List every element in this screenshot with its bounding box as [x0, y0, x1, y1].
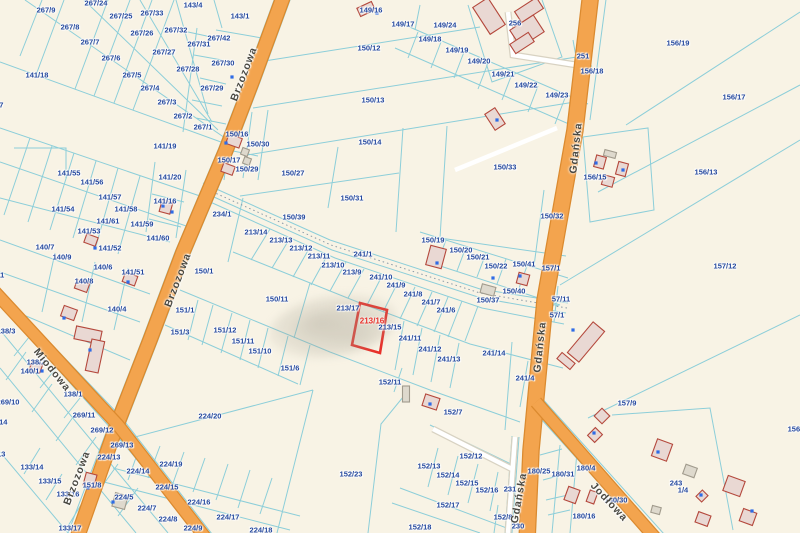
parcel-label: 149/22	[515, 81, 538, 90]
address-point-dot	[592, 431, 595, 434]
building-footprint	[84, 234, 98, 247]
building-footprint	[426, 245, 447, 268]
parcel-label: 156/19	[667, 39, 690, 48]
parcel-label: 57/11	[552, 295, 570, 304]
parcel-label: 213/17	[337, 304, 360, 313]
parcel-label: 141/20	[159, 173, 182, 182]
building-footprint	[651, 439, 672, 461]
parcel-label: 241/11	[399, 334, 422, 343]
parcel-label: 241/6	[437, 306, 456, 315]
parcel-label: 149/19	[446, 46, 469, 55]
parcel-label: 140/8	[75, 277, 94, 286]
parcel-label: 150/32	[541, 212, 564, 221]
parcel-label: 267/4	[141, 84, 160, 93]
parcel-label: 152/13	[418, 462, 441, 471]
address-point-dot	[93, 246, 96, 249]
parcel-label: 234/1	[213, 210, 232, 219]
parcel-label: 150/40	[503, 287, 526, 296]
parcel-label: 150/11	[266, 295, 289, 304]
parcel-label: 269/13	[111, 441, 134, 450]
parcel-label: 141/19	[154, 142, 177, 151]
parcel-label: 57/1	[550, 311, 565, 320]
parcel-label: 150/41	[513, 260, 536, 269]
parcel-label: 241/4	[516, 374, 535, 383]
parcel-label: 156/18	[581, 67, 604, 76]
parcel-label: 267/9	[37, 6, 56, 15]
parcel-label: 141/27	[0, 101, 3, 110]
parcel-label: 241/14	[483, 349, 506, 358]
parcel-label: 267/25	[110, 12, 133, 21]
parcel-label: 156/17	[723, 93, 746, 102]
parcel-label: 267/2	[174, 112, 193, 121]
parcel-label: 156/13	[695, 168, 718, 177]
building-footprint	[594, 408, 610, 424]
parcel-label: 224/17	[217, 513, 240, 522]
parcel-label: 133/15	[39, 477, 62, 486]
address-point-dot	[491, 276, 494, 279]
parcel-label: 141/54	[52, 205, 75, 214]
address-point-dot	[621, 168, 624, 171]
parcel-label: 140/6	[94, 263, 113, 272]
building-footprint	[651, 505, 662, 514]
address-point-dot	[495, 118, 498, 121]
parcel-label: 224/16	[188, 498, 211, 507]
parcel-label: 151/8	[83, 481, 102, 490]
parcel-label: 141/53	[78, 227, 101, 236]
parcel-label: 149/17	[392, 20, 415, 29]
parcel-label: 150/27	[282, 169, 305, 178]
parcel-label: 149/24	[434, 21, 457, 30]
parcel-label: 267/31	[188, 40, 211, 49]
parcel-label: 267/42	[208, 34, 231, 43]
parcel-label: 141/58	[115, 205, 138, 214]
parcel-label: 267/7	[81, 38, 100, 47]
parcel-label: 152/11	[379, 378, 402, 387]
address-point-dot	[594, 161, 597, 164]
parcel-label: 141/59	[131, 220, 154, 229]
parcel-label: 149/20	[468, 57, 491, 66]
parcel-label: 141/55	[58, 169, 81, 178]
parcel-label: 213/11	[308, 252, 331, 261]
parcel-label: 156/1	[788, 425, 800, 434]
parcel-label: 150/13	[362, 96, 385, 105]
parcel-label: 224/15	[156, 483, 179, 492]
building-footprint	[516, 272, 529, 285]
building-footprint	[422, 394, 440, 410]
parcel-label: 224/9	[184, 524, 203, 533]
building-footprint	[683, 464, 698, 478]
parcel-label: 267/3	[158, 98, 177, 107]
building-footprint	[241, 148, 250, 157]
parcel-label: 150/14	[359, 138, 382, 147]
parcel-label: 149/23	[546, 91, 569, 100]
parcel-label: 224/5	[115, 493, 134, 502]
address-point-dot	[435, 261, 438, 264]
parcel-label: 140/7	[36, 243, 55, 252]
parcel-label: 151/3	[171, 328, 190, 337]
parcel-label: 151/10	[249, 347, 272, 356]
parcel-label: 150/31	[341, 194, 364, 203]
parcel-label: 156/15	[584, 173, 607, 182]
parcel-label: 141/56	[81, 178, 104, 187]
building-footprint	[695, 512, 711, 527]
parcel-label: 267/33	[141, 9, 164, 18]
address-point-dot	[571, 328, 574, 331]
parcel-label: 224/8	[159, 515, 178, 524]
parcel-label: 213/9	[343, 268, 362, 277]
parcel-label: 149/18	[419, 35, 442, 44]
parcel-label: 150/29	[236, 165, 259, 174]
parcel-label: 241/13	[438, 355, 461, 364]
parcel-label: 140/9	[53, 253, 72, 262]
parcel-label: 267/26	[131, 29, 154, 38]
parcel-label: 141/18	[26, 71, 49, 80]
parcel-label: 267/32	[165, 26, 188, 35]
parcel-label: 180/31	[552, 470, 575, 479]
parcel-label: 143/1	[231, 12, 250, 21]
address-point-dot	[230, 75, 233, 78]
parcel-label: 224/13	[98, 453, 121, 462]
parcel-label: 150/12	[358, 44, 381, 53]
parcel-label: 141/57	[99, 193, 122, 202]
parcel-label: 180/25	[528, 467, 551, 476]
parcel-label: 241/8	[404, 290, 423, 299]
parcel-label: 213/10	[322, 261, 345, 270]
address-point-dot	[40, 369, 43, 372]
parcel-label: 224/7	[138, 504, 157, 513]
parcel-label: 213/14	[245, 228, 268, 237]
cadastral-map-canvas[interactable]: 267/24267/9267/33267/25267/8267/32267/26…	[0, 0, 800, 533]
building-footprint	[567, 322, 604, 362]
parcel-label: 141/52	[99, 244, 122, 253]
parcel-label: 150/19	[422, 236, 445, 245]
parcel-label: 141/61	[97, 217, 120, 226]
parcel-label: 152/7	[444, 408, 463, 417]
building-footprint	[564, 486, 580, 503]
parcel-label: 267/24	[85, 0, 108, 8]
parcel-label: 1/4	[678, 486, 688, 495]
parcel-label: 150/37	[477, 296, 500, 305]
address-point-dot	[699, 493, 702, 496]
parcel-label: 256	[509, 19, 522, 28]
parcel-label: 149/21	[492, 70, 515, 79]
parcel-label: 151/6	[281, 364, 300, 373]
address-point-dot	[62, 316, 65, 319]
parcel-label: 143/4	[184, 1, 203, 10]
building-footprint	[473, 0, 506, 34]
parcel-label: 157/9	[618, 399, 637, 408]
parcel-label: 151/12	[214, 326, 237, 335]
parcel-label: 267/6	[102, 54, 121, 63]
address-point-dot	[126, 280, 129, 283]
parcel-label: 141/60	[147, 234, 170, 243]
parcel-label: 133/13	[0, 450, 5, 459]
parcel-label: 269/14	[0, 418, 7, 427]
parcel-label: 267/27	[153, 48, 176, 57]
parcel-label: 267/29	[201, 84, 224, 93]
parcel-label: 269/12	[91, 426, 114, 435]
address-point-dot	[750, 509, 753, 512]
parcel-label: 224/18	[250, 526, 273, 533]
parcel-label: 133/14	[21, 463, 44, 472]
address-point-dot	[656, 450, 659, 453]
parcel-label: 224/20	[199, 412, 222, 421]
parcel-label: 157/12	[714, 262, 737, 271]
parcel-label: 152/16	[476, 486, 499, 495]
parcel-label: 133/17	[59, 524, 82, 533]
parcel-label: 157/1	[542, 264, 561, 273]
parcel-label: 180/4	[577, 464, 596, 473]
address-point-dot	[428, 402, 431, 405]
parcel-label: 269/11	[73, 411, 96, 420]
address-point-dot	[224, 141, 227, 144]
parcel-label: 150/21	[467, 253, 490, 262]
parcel-label: 150/17	[218, 156, 241, 165]
parcel-label: 151/11	[232, 337, 255, 346]
parcel-label: 150/16	[226, 130, 249, 139]
parcel-label: 251	[577, 52, 590, 61]
parcel-label: 150/22	[485, 262, 508, 271]
parcel-label: 150/39	[283, 213, 306, 222]
address-point-dot	[518, 274, 521, 277]
parcel-label: 267/8	[61, 23, 80, 32]
address-point-dot	[88, 348, 91, 351]
parcel-label: 224/19	[160, 460, 183, 469]
building-footprint	[588, 428, 603, 443]
building-footprint	[480, 284, 496, 296]
building-footprint	[85, 339, 104, 373]
parcel-label: 267/1	[194, 123, 213, 132]
highlighted-parcel-label: 213/16	[360, 317, 384, 326]
parcel-label: 150/30	[247, 140, 270, 149]
parcel-label: 241/1	[354, 250, 373, 259]
parcel-label: 152/18	[409, 523, 432, 532]
parcel-label: 138/3	[0, 327, 15, 336]
parcel-label: 141/51	[122, 268, 145, 277]
building-footprint	[403, 386, 410, 402]
parcel-label: 152/17	[437, 501, 460, 510]
parcel-label: 150/33	[494, 163, 517, 172]
parcel-label: 269/10	[0, 398, 19, 407]
parcel-label: 141/16	[154, 197, 177, 206]
parcel-label: 149/16	[360, 6, 383, 15]
parcel-label: 267/5	[123, 71, 142, 80]
parcel-label: 267/28	[177, 65, 200, 74]
parcel-label: 267/30	[212, 59, 235, 68]
parcel-label: 151/1	[176, 306, 195, 315]
parcel-label: 180/16	[573, 512, 596, 521]
parcel-label: 152/23	[340, 470, 363, 479]
parcel-label: 152/12	[460, 452, 483, 461]
parcel-label: 140/11	[0, 271, 4, 280]
parcel-label: 140/4	[108, 305, 127, 314]
parcel-label: 140/1	[21, 367, 40, 376]
parcel-label: 150/1	[195, 267, 214, 276]
building-footprint	[485, 108, 505, 130]
parcel-label: 241/12	[419, 345, 442, 354]
address-point-dot	[170, 210, 173, 213]
parcel-label: 241/9	[387, 281, 406, 290]
parcel-label: 224/14	[127, 467, 150, 476]
building-footprint	[739, 508, 757, 525]
